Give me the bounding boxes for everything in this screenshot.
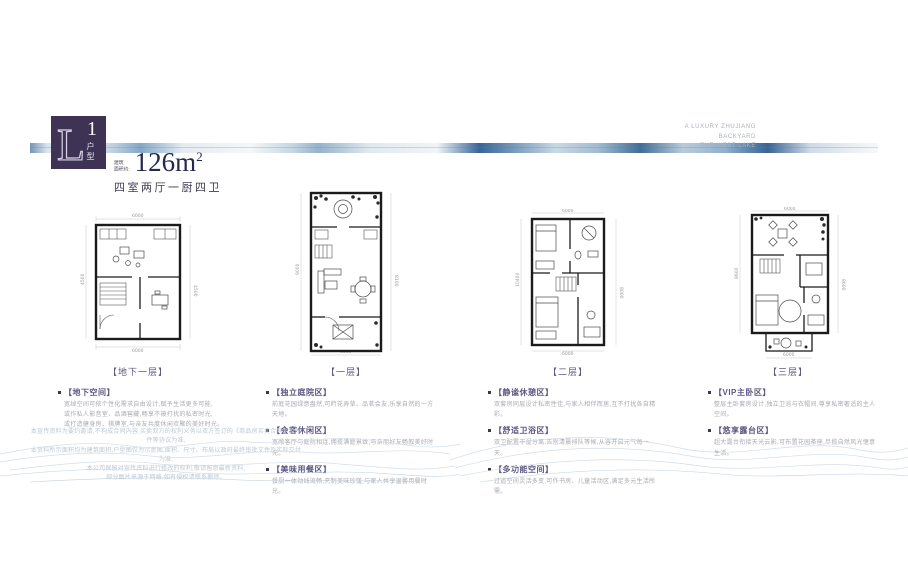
wave-decoration bbox=[0, 424, 908, 488]
area-prefix: 建筑 面积约: bbox=[114, 161, 130, 173]
bullet-square-icon bbox=[708, 391, 711, 394]
plan-caption: 【三层】 bbox=[698, 365, 878, 378]
plan-caption: 【地下一层】 bbox=[48, 365, 228, 378]
dim-right: 8000 bbox=[618, 287, 624, 299]
dim-top: 6000 bbox=[132, 213, 144, 219]
dim-bottom: 6000 bbox=[132, 348, 144, 353]
unit-number: 1 bbox=[87, 118, 97, 140]
dim-left: 9000 bbox=[295, 263, 301, 275]
tagline: A LUXURY ZHUJIANG BACKYARD THE WEST LAKE bbox=[685, 123, 756, 152]
note-text: 整层主卧套房设计,独立卫浴与衣帽间,尊享私密奢适的主人空间。 bbox=[714, 400, 878, 420]
tagline-line1: A LUXURY ZHUJIANG bbox=[685, 123, 756, 133]
unit-suffix: 户型 bbox=[85, 142, 96, 162]
area-prefix-line2: 面积约: bbox=[114, 167, 130, 173]
floorplan-second-floor: 6000 6000 10400 8000 bbox=[478, 185, 658, 363]
brochure-page: L 1 户型 建筑 面积约: 126m2 四室两厅一厨四卫 A LUXURY Z… bbox=[0, 0, 908, 570]
plan-column-third-floor: 6000 8600 8600 6000 bbox=[698, 185, 878, 464]
plan-caption: 【一层】 bbox=[256, 365, 436, 378]
note-text: 前庭花园绿意盎然,可莳花弄草、品茗会友,乐享自然的一方天地。 bbox=[272, 400, 436, 420]
note-title: 【VIP主卧区】 bbox=[714, 387, 771, 398]
dim-top: 6000 bbox=[784, 207, 796, 212]
dim-right: 4500 bbox=[192, 285, 198, 297]
plan-column-basement: 6000 6000 4500 4500 【地下一层】 bbox=[48, 185, 228, 436]
floorplan-basement: 6000 6000 4500 4500 bbox=[48, 185, 228, 363]
bullet-square-icon bbox=[58, 391, 61, 394]
dim-left: 10400 bbox=[515, 273, 521, 287]
dim-left: 4500 bbox=[80, 273, 86, 285]
note-text: 双套房同层设计私密性佳,与家人相伴而居,互不打扰各自精彩。 bbox=[494, 400, 658, 420]
unit-type-badge: L 1 户型 bbox=[52, 117, 105, 168]
dim-bottom: 6000 bbox=[562, 351, 574, 355]
bullet-square-icon bbox=[266, 391, 269, 394]
note-item: 【独立庭院区】 前庭花园绿意盎然,可莳花弄草、品茗会友,乐享自然的一方天地。 bbox=[266, 387, 436, 420]
dim-top: 6000 bbox=[562, 209, 574, 214]
area-value: 126m2 bbox=[135, 149, 203, 176]
floorplan-third-floor: 6000 8600 8600 6000 bbox=[698, 185, 878, 363]
note-item: 【VIP主卧区】 整层主卧套房设计,独立卫浴与衣帽间,尊享私密奢适的主人空间。 bbox=[708, 387, 878, 420]
dim-bottom: 6000 bbox=[783, 352, 795, 358]
floorplan-first-floor: 9000 8100 6000 bbox=[256, 185, 436, 363]
unit-letter: L bbox=[57, 122, 85, 168]
dim-left: 8600 bbox=[734, 267, 740, 279]
note-title: 【独立庭院区】 bbox=[272, 387, 332, 398]
note-item: 【静谧休憩区】 双套房同层设计私密性佳,与家人相伴而居,互不打扰各自精彩。 bbox=[488, 387, 658, 420]
dim-right: 8600 bbox=[840, 279, 846, 291]
tagline-line2: BACKYARD bbox=[685, 133, 756, 143]
bullet-square-icon bbox=[488, 391, 491, 394]
dim-right: 8100 bbox=[393, 275, 399, 287]
note-title: 【静谧休憩区】 bbox=[494, 387, 554, 398]
plan-caption: 【二层】 bbox=[478, 365, 658, 378]
note-title: 【地下空间】 bbox=[64, 387, 115, 398]
tagline-line3: THE WEST LAKE bbox=[685, 142, 756, 152]
